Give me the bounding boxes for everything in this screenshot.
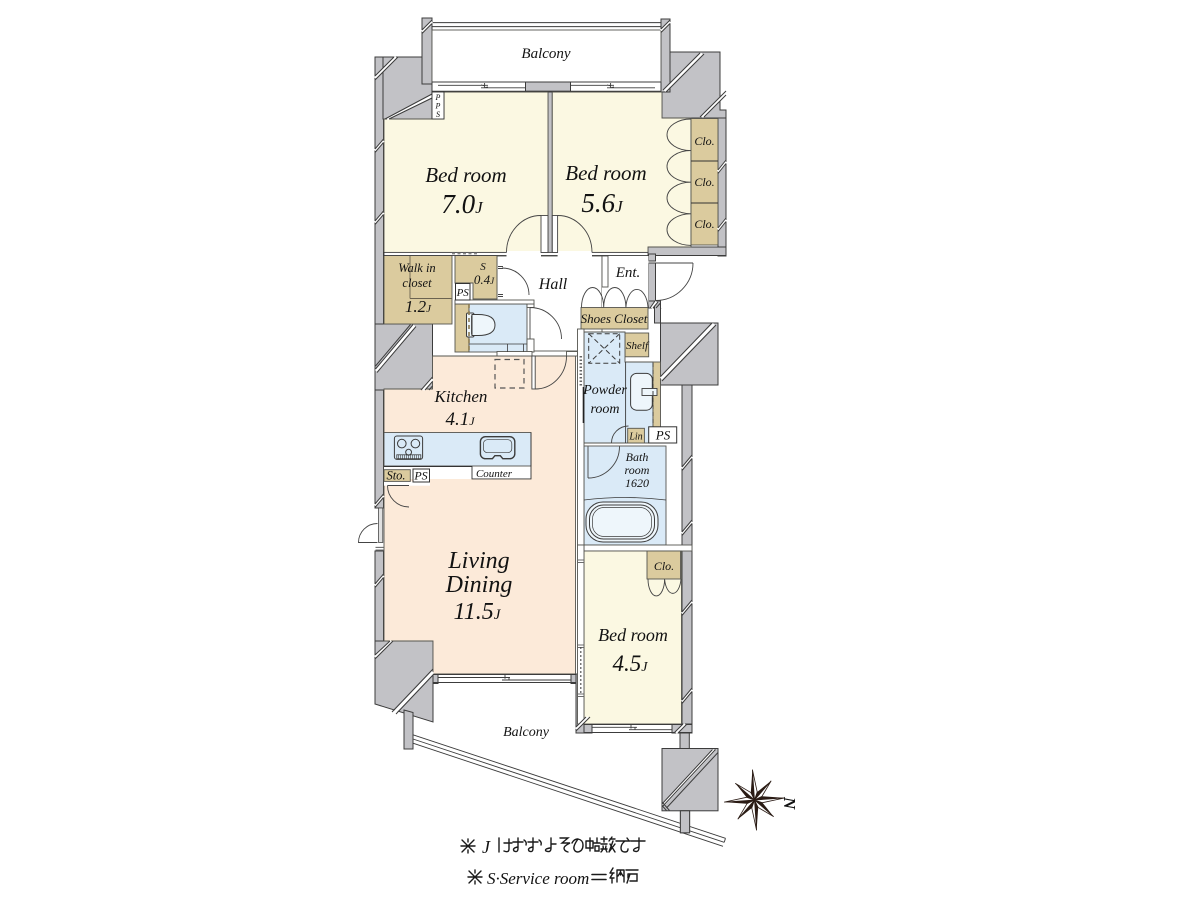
svg-text:PS: PS bbox=[413, 469, 427, 483]
svg-text:Balcony: Balcony bbox=[521, 46, 570, 62]
svg-text:Bath: Bath bbox=[626, 450, 649, 464]
svg-text:Lin: Lin bbox=[628, 432, 642, 443]
svg-text:Ent.: Ent. bbox=[615, 265, 641, 281]
svg-text:closet: closet bbox=[402, 276, 432, 290]
svg-text:Bed room: Bed room bbox=[565, 161, 646, 185]
svg-text:1620: 1620 bbox=[625, 476, 649, 490]
svg-text:PS: PS bbox=[456, 287, 470, 299]
svg-text:Powder: Powder bbox=[582, 383, 627, 398]
svg-text:room: room bbox=[590, 402, 619, 417]
svg-text:Bed room: Bed room bbox=[425, 163, 506, 187]
svg-text:Clo.: Clo. bbox=[694, 134, 714, 148]
svg-text:Clo.: Clo. bbox=[654, 559, 674, 573]
svg-text:Shelf: Shelf bbox=[626, 340, 650, 352]
svg-text:Bed room: Bed room bbox=[598, 625, 668, 645]
svg-text:S·Service room: S·Service room bbox=[487, 869, 589, 888]
svg-text:Clo.: Clo. bbox=[694, 217, 714, 231]
svg-text:Living: Living bbox=[447, 548, 509, 574]
svg-text:room: room bbox=[625, 463, 650, 477]
svg-text:PS: PS bbox=[655, 428, 671, 443]
svg-text:N: N bbox=[780, 796, 799, 810]
svg-text:Hall: Hall bbox=[538, 276, 568, 293]
svg-text:J: J bbox=[482, 837, 491, 857]
svg-text:S: S bbox=[436, 110, 440, 119]
svg-text:Kitchen: Kitchen bbox=[434, 387, 488, 406]
svg-text:Balcony: Balcony bbox=[503, 725, 550, 740]
svg-text:Clo.: Clo. bbox=[694, 175, 714, 189]
svg-text:Walk in: Walk in bbox=[398, 261, 435, 275]
svg-text:Counter: Counter bbox=[476, 468, 513, 480]
svg-text:Sto.: Sto. bbox=[386, 469, 405, 483]
svg-text:Shoes Closet: Shoes Closet bbox=[581, 311, 648, 326]
svg-text:Dining: Dining bbox=[445, 572, 513, 598]
